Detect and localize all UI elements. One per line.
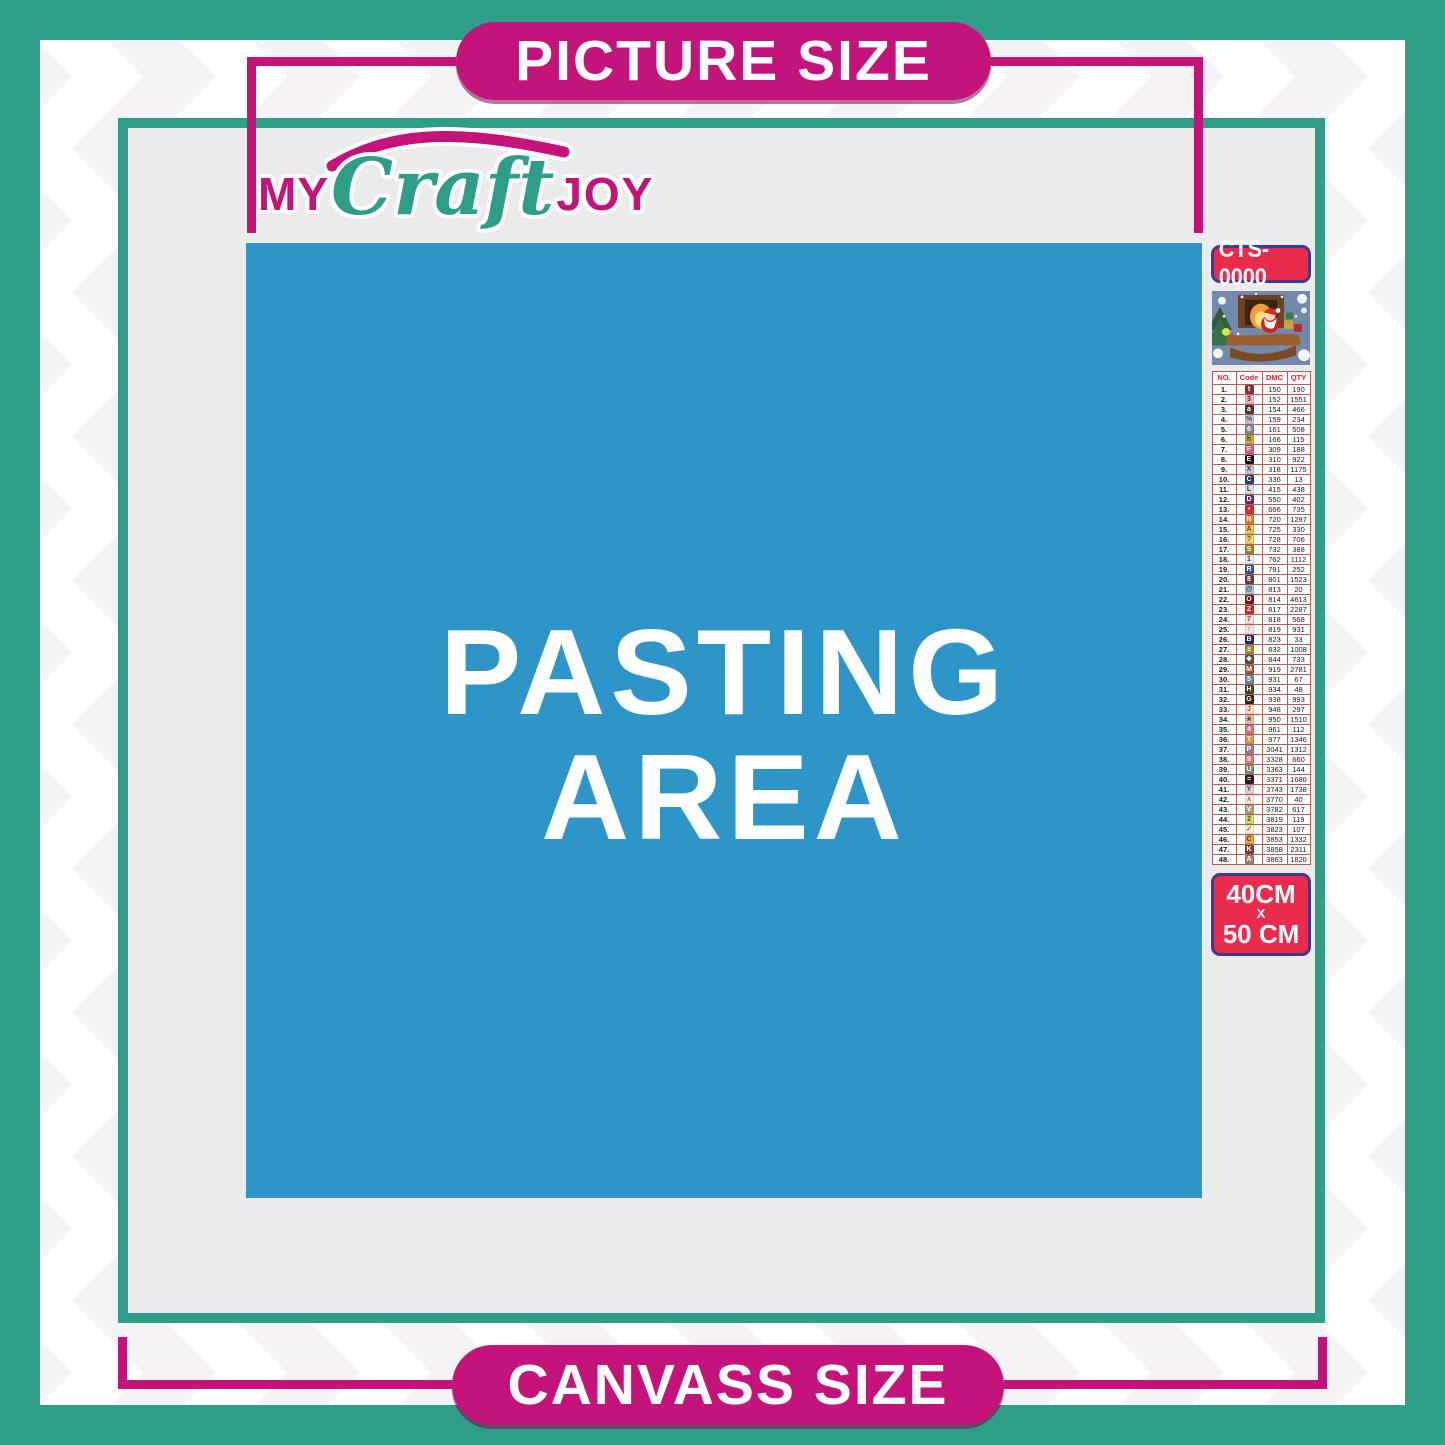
table-row: 31.H93448 [1212, 685, 1310, 695]
symbol-cell: ✓ [1236, 825, 1262, 835]
table-row: 6.h166115 [1212, 435, 1310, 445]
row-number: 47. [1212, 845, 1236, 855]
table-row: 36.T9771346 [1212, 735, 1310, 745]
table-row: 48.A38631820 [1212, 855, 1310, 865]
dmc-value: 732 [1262, 545, 1287, 555]
qty-value: 112 [1287, 725, 1310, 735]
table-row: 22.O8144613 [1212, 595, 1310, 605]
dmc-value: 3770 [1262, 795, 1287, 805]
symbol-cell: M [1236, 665, 1262, 675]
dmc-value: 3782 [1262, 805, 1287, 815]
symbol-cell: • [1236, 505, 1262, 515]
qty-value: 1680 [1287, 775, 1310, 785]
qty-value: 297 [1287, 705, 1310, 715]
symbol-cell: A [1236, 855, 1262, 865]
symbol-cell: % [1236, 415, 1262, 425]
dmc-value: 154 [1262, 405, 1287, 415]
symbol-cell: H [1236, 685, 1262, 695]
table-row: 21.@81320 [1212, 585, 1310, 595]
row-number: 2. [1212, 395, 1236, 405]
qty-value: 20 [1287, 585, 1310, 595]
qty-value: 568 [1287, 615, 1310, 625]
table-row: 1.t150190 [1212, 385, 1310, 395]
row-number: 18. [1212, 555, 1236, 565]
canvass-bracket-line [118, 1380, 452, 1389]
symbol-cell: B [1236, 635, 1262, 645]
dmc-value: 817 [1262, 605, 1287, 615]
qty-value: 1523 [1287, 575, 1310, 585]
qty-value: 1346 [1287, 735, 1310, 745]
dmc-color-table: NO. Code DMC QTY 1.t1501902.315215513.a1… [1212, 371, 1311, 865]
color-symbol: T [1245, 735, 1254, 744]
dmc-value: 819 [1262, 625, 1287, 635]
symbol-cell: ★ [1236, 715, 1262, 725]
table-row: 39.U3363144 [1212, 765, 1310, 775]
qty-value: 402 [1287, 495, 1310, 505]
qty-value: 931 [1287, 625, 1310, 635]
color-symbol: 8 [1245, 575, 1254, 584]
dmc-value: 159 [1262, 415, 1287, 425]
symbol-cell: ? [1236, 535, 1262, 545]
table-row: 38.93328660 [1212, 755, 1310, 765]
qty-value: 1297 [1287, 515, 1310, 525]
color-symbol: 9 [1245, 755, 1254, 764]
table-row: 10.C33613 [1212, 475, 1310, 485]
row-number: 5. [1212, 425, 1236, 435]
color-symbol: ? [1245, 535, 1254, 544]
dmc-value: 977 [1262, 735, 1287, 745]
row-number: 24. [1212, 615, 1236, 625]
qty-value: 660 [1287, 755, 1310, 765]
symbol-cell: t [1236, 385, 1262, 395]
dmc-value: 762 [1262, 555, 1287, 565]
row-number: 8. [1212, 455, 1236, 465]
table-row: 37.P30411312 [1212, 745, 1310, 755]
row-number: 22. [1212, 595, 1236, 605]
color-symbol: L [1245, 485, 1254, 494]
dmc-value: 318 [1262, 465, 1287, 475]
symbol-cell: J [1236, 705, 1262, 715]
row-number: 12. [1212, 495, 1236, 505]
symbol-cell: V [1236, 805, 1262, 815]
row-number: 9. [1212, 465, 1236, 475]
color-symbol: Z [1245, 605, 1254, 614]
color-symbol: U [1245, 765, 1254, 774]
qty-value: 733 [1287, 655, 1310, 665]
canvass-bracket-line [1318, 1337, 1327, 1389]
table-row: 7.F309188 [1212, 445, 1310, 455]
row-number: 28. [1212, 655, 1236, 665]
symbol-cell: a [1236, 405, 1262, 415]
symbol-cell: F [1236, 445, 1262, 455]
row-number: 3. [1212, 405, 1236, 415]
symbol-cell: 6 [1236, 425, 1262, 435]
color-symbol: = [1245, 775, 1254, 784]
row-number: 25. [1212, 625, 1236, 635]
row-number: 33. [1212, 705, 1236, 715]
table-row: 4.%159234 [1212, 415, 1310, 425]
qty-value: 993 [1287, 695, 1310, 705]
dmc-value: 728 [1262, 535, 1287, 545]
row-number: 26. [1212, 635, 1236, 645]
color-symbol: 6 [1245, 425, 1254, 434]
qty-value: 508 [1287, 425, 1310, 435]
color-symbol: 5 [1245, 675, 1254, 684]
qty-value: 1510 [1287, 715, 1310, 725]
dmc-value: 166 [1262, 435, 1287, 445]
legend-sidebar: CTS-0000 [1210, 245, 1312, 956]
header-code: Code [1236, 372, 1262, 385]
color-symbol: X [1245, 465, 1254, 474]
color-symbol: M [1245, 665, 1254, 674]
symbol-cell: h [1236, 435, 1262, 445]
row-number: 13. [1212, 505, 1236, 515]
dmc-value: 791 [1262, 565, 1287, 575]
qty-value: 1551 [1287, 395, 1310, 405]
dmc-value: 813 [1262, 585, 1287, 595]
qty-value: 466 [1287, 405, 1310, 415]
qty-value: 67 [1287, 675, 1310, 685]
dmc-value: 725 [1262, 525, 1287, 535]
picture-size-banner: PICTURE SIZE [456, 22, 991, 100]
symbol-cell: R [1236, 565, 1262, 575]
symbol-cell: ❖ [1236, 655, 1262, 665]
dmc-value: 801 [1262, 575, 1287, 585]
dmc-value: 3853 [1262, 835, 1287, 845]
dmc-value: 814 [1262, 595, 1287, 605]
row-number: 4. [1212, 415, 1236, 425]
table-row: 26.B82333 [1212, 635, 1310, 645]
dmc-value: 832 [1262, 645, 1287, 655]
dmc-value: 3328 [1262, 755, 1287, 765]
color-symbol: 4 [1245, 725, 1254, 734]
row-number: 42. [1212, 795, 1236, 805]
qty-value: 4613 [1287, 595, 1310, 605]
color-symbol: E [1245, 455, 1254, 464]
row-number: 32. [1212, 695, 1236, 705]
color-symbol: G [1245, 695, 1254, 704]
row-number: 44. [1212, 815, 1236, 825]
symbol-cell: G [1236, 695, 1262, 705]
table-header-row: NO. Code DMC QTY [1212, 372, 1310, 385]
color-symbol: ± [1245, 645, 1254, 654]
table-row: 3.a154466 [1212, 405, 1310, 415]
color-symbol: C [1245, 835, 1254, 844]
row-number: 41. [1212, 785, 1236, 795]
symbol-cell: K [1236, 845, 1262, 855]
table-row: 2.31521551 [1212, 395, 1310, 405]
qty-value: 144 [1287, 765, 1310, 775]
table-row: 23.Z8172287 [1212, 605, 1310, 615]
row-number: 20. [1212, 575, 1236, 585]
qty-value: 330 [1287, 525, 1310, 535]
row-number: 48. [1212, 855, 1236, 865]
symbol-cell: 7 [1236, 615, 1262, 625]
dmc-value: 823 [1262, 635, 1287, 645]
table-row: 18.17621112 [1212, 555, 1310, 565]
dmc-value: 961 [1262, 725, 1287, 735]
dmc-value: 950 [1262, 715, 1287, 725]
row-number: 21. [1212, 585, 1236, 595]
table-row: 15.A725330 [1212, 525, 1310, 535]
symbol-cell: 2 [1236, 815, 1262, 825]
qty-value: 13 [1287, 475, 1310, 485]
row-number: 40. [1212, 775, 1236, 785]
row-number: 16. [1212, 535, 1236, 545]
dmc-value: 818 [1262, 615, 1287, 625]
row-number: 10. [1212, 475, 1236, 485]
symbol-cell: X [1236, 465, 1262, 475]
table-row: 5.6161508 [1212, 425, 1310, 435]
symbol-cell: ↑ [1236, 625, 1262, 635]
dmc-value: 938 [1262, 695, 1287, 705]
dmc-value: 919 [1262, 665, 1287, 675]
table-row: 19.R791252 [1212, 565, 1310, 575]
symbol-cell: 4 [1236, 725, 1262, 735]
symbol-cell: T [1236, 735, 1262, 745]
color-symbol: • [1245, 505, 1254, 514]
qty-value: 119 [1287, 815, 1310, 825]
qty-value: 1820 [1287, 855, 1310, 865]
row-number: 37. [1212, 745, 1236, 755]
row-number: 34. [1212, 715, 1236, 725]
symbol-cell: 9 [1236, 755, 1262, 765]
table-row: 16.?728706 [1212, 535, 1310, 545]
table-row: 11.L415438 [1212, 485, 1310, 495]
symbol-cell: @ [1236, 585, 1262, 595]
qty-value: 33 [1287, 635, 1310, 645]
qty-value: 1008 [1287, 645, 1310, 655]
qty-value: 1112 [1287, 555, 1310, 565]
symbol-cell: C [1236, 475, 1262, 485]
table-row: 24.7818568 [1212, 615, 1310, 625]
dmc-value: 3363 [1262, 765, 1287, 775]
symbol-cell: O [1236, 595, 1262, 605]
row-number: 6. [1212, 435, 1236, 445]
color-symbol: 2 [1245, 815, 1254, 824]
row-number: 1. [1212, 385, 1236, 395]
qty-value: 188 [1287, 445, 1310, 455]
row-number: 15. [1212, 525, 1236, 535]
symbol-cell: L [1236, 485, 1262, 495]
row-number: 43. [1212, 805, 1236, 815]
color-symbol: F [1245, 445, 1254, 454]
row-number: 30. [1212, 675, 1236, 685]
kit-code-badge: CTS-0000 [1211, 245, 1311, 283]
row-number: 31. [1212, 685, 1236, 695]
color-symbol: S [1245, 545, 1254, 554]
logo-text-my: MY [258, 167, 329, 221]
color-symbol: 7 [1245, 615, 1254, 624]
color-symbol: @ [1245, 585, 1254, 594]
qty-value: 1332 [1287, 835, 1310, 845]
dmc-table-body: 1.t1501902.315215513.a1544664.%1592345.6… [1212, 385, 1310, 865]
logo-text-craft: Craft [331, 142, 554, 233]
row-number: 46. [1212, 835, 1236, 845]
kit-code-text: CTS-0000 [1219, 236, 1304, 292]
size-height-text: 50 CM [1214, 921, 1308, 947]
symbol-cell: ∧ [1236, 795, 1262, 805]
color-symbol: P [1245, 745, 1254, 754]
color-symbol: H [1245, 685, 1254, 694]
color-symbol: ❖ [1245, 655, 1254, 664]
qty-value: 438 [1287, 485, 1310, 495]
row-number: 45. [1212, 825, 1236, 835]
color-symbol: a [1245, 405, 1254, 414]
pasting-area: PASTING AREA [246, 243, 1202, 1198]
symbol-cell: C [1236, 835, 1262, 845]
qty-value: 2781 [1287, 665, 1310, 675]
color-symbol: ✓ [1245, 825, 1254, 834]
dmc-value: 844 [1262, 655, 1287, 665]
picture-bracket-line [991, 57, 1203, 66]
pasting-area-label-line2: AREA [541, 735, 907, 859]
row-number: 35. [1212, 725, 1236, 735]
qty-value: 617 [1287, 805, 1310, 815]
color-symbol: O [1245, 595, 1254, 604]
row-number: 29. [1212, 665, 1236, 675]
dmc-value: 931 [1262, 675, 1287, 685]
qty-value: 922 [1287, 455, 1310, 465]
table-row: 45.✓3823107 [1212, 825, 1310, 835]
dmc-value: 161 [1262, 425, 1287, 435]
symbol-cell: S [1236, 545, 1262, 555]
row-number: 38. [1212, 755, 1236, 765]
canvass-bracket-line [118, 1337, 127, 1389]
dmc-value: 3863 [1262, 855, 1287, 865]
symbol-cell: ± [1236, 645, 1262, 655]
qty-value: 1175 [1287, 465, 1310, 475]
canvas-size-badge: 40CM X 50 CM [1211, 873, 1311, 956]
symbol-cell: 8 [1236, 575, 1262, 585]
picture-bracket-line [247, 57, 256, 233]
symbol-cell: A [1236, 525, 1262, 535]
table-row: 32.G938993 [1212, 695, 1310, 705]
color-symbol: 1 [1245, 555, 1254, 564]
row-number: 23. [1212, 605, 1236, 615]
symbol-cell: = [1236, 775, 1262, 785]
color-symbol: ↑ [1245, 625, 1254, 634]
color-symbol: A [1245, 855, 1254, 864]
picture-bracket-line [1194, 57, 1203, 233]
table-row: 25.↑819931 [1212, 625, 1310, 635]
table-row: 30.593167 [1212, 675, 1310, 685]
color-symbol: % [1245, 415, 1254, 424]
dmc-value: 150 [1262, 385, 1287, 395]
symbol-cell: Y [1236, 785, 1262, 795]
symbol-cell: D [1236, 495, 1262, 505]
color-symbol: R [1245, 565, 1254, 574]
dmc-value: 550 [1262, 495, 1287, 505]
qty-value: 2311 [1287, 845, 1310, 855]
qty-value: 252 [1287, 565, 1310, 575]
row-number: 17. [1212, 545, 1236, 555]
dmc-value: 415 [1262, 485, 1287, 495]
picture-bracket-line [247, 57, 456, 66]
symbol-cell: Z [1236, 605, 1262, 615]
table-row: 40.=33711680 [1212, 775, 1310, 785]
symbol-cell: 1 [1236, 555, 1262, 565]
brand-logo: MY Craft JOY [258, 138, 654, 229]
table-row: 8.E310922 [1212, 455, 1310, 465]
dmc-value: 948 [1262, 705, 1287, 715]
qty-value: 706 [1287, 535, 1310, 545]
header-dmc: DMC [1262, 372, 1287, 385]
qty-value: 234 [1287, 415, 1310, 425]
color-symbol: 3 [1245, 395, 1254, 404]
dmc-value: 3858 [1262, 845, 1287, 855]
symbol-cell: 5 [1236, 675, 1262, 685]
dmc-value: 720 [1262, 515, 1287, 525]
dmc-value: 934 [1262, 685, 1287, 695]
color-symbol: K [1245, 845, 1254, 854]
table-row: 34.★9501510 [1212, 715, 1310, 725]
table-row: 46.C38531332 [1212, 835, 1310, 845]
pasting-area-label-line1: PASTING [440, 610, 1008, 734]
color-symbol: t [1245, 385, 1254, 394]
table-row: 28.❖844733 [1212, 655, 1310, 665]
symbol-cell: P [1236, 745, 1262, 755]
table-row: 12.D550402 [1212, 495, 1310, 505]
color-symbol: A [1245, 525, 1254, 534]
row-number: 7. [1212, 445, 1236, 455]
symbol-cell: N [1236, 515, 1262, 525]
row-number: 11. [1212, 485, 1236, 495]
symbol-cell: 3 [1236, 395, 1262, 405]
color-symbol: V [1245, 805, 1254, 814]
dmc-value: 309 [1262, 445, 1287, 455]
table-row: 35.4961112 [1212, 725, 1310, 735]
table-row: 17.S732388 [1212, 545, 1310, 555]
poster: PASTING AREA PICTURE SIZE CANVASS SIZE M… [0, 0, 1445, 1445]
row-number: 39. [1212, 765, 1236, 775]
table-row: 14.N7201297 [1212, 515, 1310, 525]
color-symbol: J [1245, 705, 1254, 714]
color-symbol: h [1245, 435, 1254, 444]
canvass-size-banner: CANVASS SIZE [452, 1345, 1004, 1425]
qty-value: 48 [1287, 685, 1310, 695]
dmc-value: 3041 [1262, 745, 1287, 755]
header-no: NO. [1212, 372, 1236, 385]
row-number: 14. [1212, 515, 1236, 525]
qty-value: 2287 [1287, 605, 1310, 615]
qty-value: 1738 [1287, 785, 1310, 795]
logo-text-joy: JOY [556, 167, 654, 221]
color-symbol: Y [1245, 785, 1254, 794]
symbol-cell: E [1236, 455, 1262, 465]
table-row: 43.V3782617 [1212, 805, 1310, 815]
row-number: 19. [1212, 565, 1236, 575]
header-qty: QTY [1287, 372, 1310, 385]
size-width-text: 40CM [1214, 881, 1308, 907]
dmc-value: 3743 [1262, 785, 1287, 795]
color-symbol: ★ [1245, 715, 1254, 724]
qty-value: 107 [1287, 825, 1310, 835]
qty-value: 40 [1287, 795, 1310, 805]
table-row: 20.88011523 [1212, 575, 1310, 585]
dmc-value: 3371 [1262, 775, 1287, 785]
table-row: 13.•666735 [1212, 505, 1310, 515]
canvass-bracket-line [1004, 1380, 1327, 1389]
color-symbol: N [1245, 515, 1254, 524]
color-symbol: B [1245, 635, 1254, 644]
dmc-value: 3823 [1262, 825, 1287, 835]
dmc-value: 152 [1262, 395, 1287, 405]
table-row: 9.X3181175 [1212, 465, 1310, 475]
table-row: 29.M9192781 [1212, 665, 1310, 675]
qty-value: 388 [1287, 545, 1310, 555]
qty-value: 1312 [1287, 745, 1310, 755]
